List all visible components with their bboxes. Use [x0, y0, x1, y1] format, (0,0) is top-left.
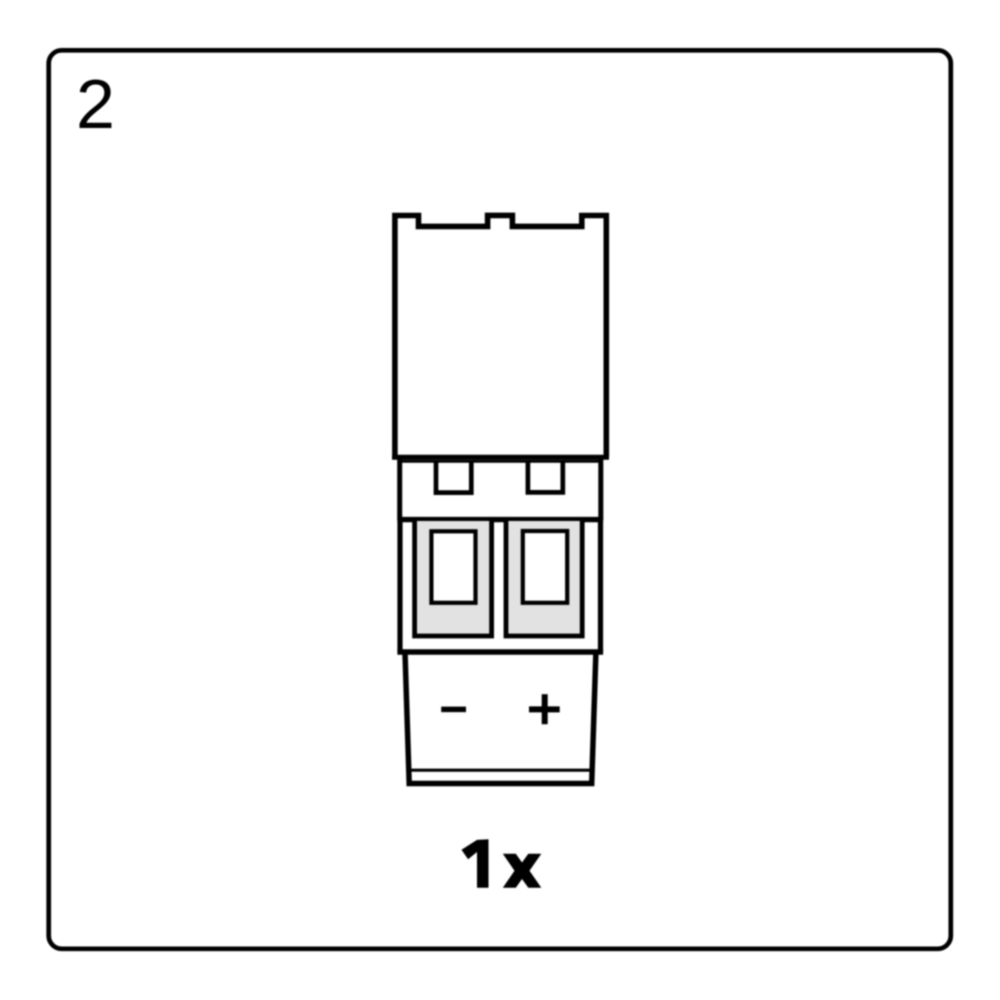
svg-text:2: 2: [76, 65, 115, 143]
